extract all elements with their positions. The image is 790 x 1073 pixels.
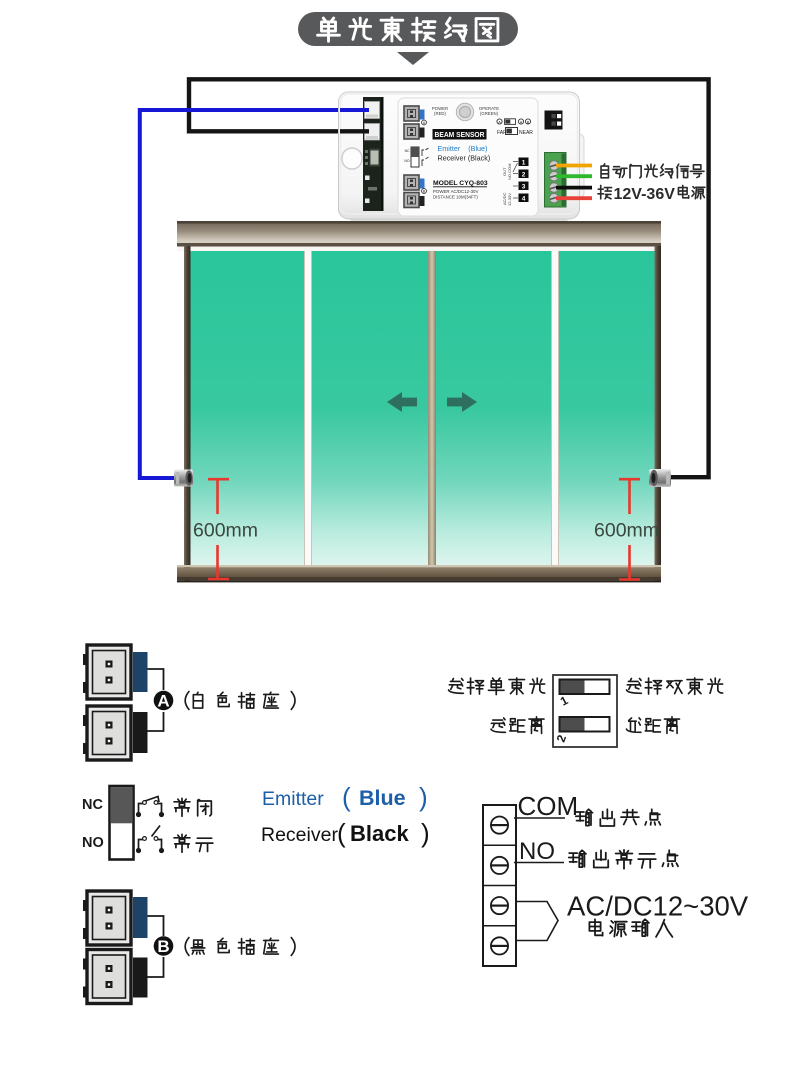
svg-text:DISTANCE 10M(34FT): DISTANCE 10M(34FT) [433, 195, 478, 200]
svg-text:BEAM SENSOR: BEAM SENSOR [435, 130, 485, 139]
svg-text:POWER AC/DC12-30V: POWER AC/DC12-30V [433, 189, 478, 194]
svg-text:NC: NC [405, 149, 410, 153]
svg-text:Emitter (Blue): Emitter (Blue) [438, 144, 488, 153]
svg-text:Receiver (Black): Receiver (Black) [438, 154, 491, 163]
svg-text:4: 4 [522, 195, 526, 202]
svg-text:(: ( [337, 818, 346, 848]
svg-text:(RED): (RED) [434, 111, 447, 116]
svg-text:COM: COM [518, 791, 579, 821]
svg-text:NC: NC [82, 797, 103, 813]
svg-text:1: 1 [522, 159, 526, 166]
svg-text:Receiver: Receiver [261, 824, 338, 846]
svg-text:A: A [157, 692, 169, 711]
svg-text:NO: NO [82, 835, 104, 851]
svg-text:12V-36V: 12V-36V [614, 186, 676, 203]
svg-text:): ) [421, 818, 430, 848]
svg-text:NO: NO [519, 838, 555, 865]
svg-text:Blue: Blue [359, 786, 406, 810]
svg-text:MODEL CYQ-803: MODEL CYQ-803 [433, 180, 488, 187]
svg-text:600mm: 600mm [193, 520, 258, 542]
svg-text:A: A [498, 120, 501, 124]
svg-text:NO: NO [404, 159, 409, 163]
svg-text:2: 2 [522, 171, 526, 178]
svg-text:(GREEN): (GREEN) [480, 111, 499, 116]
svg-text:A: A [520, 120, 523, 124]
svg-text:NEAR: NEAR [519, 130, 533, 136]
svg-text:600mm: 600mm [594, 520, 659, 542]
svg-text:B: B [527, 120, 530, 124]
svg-text:3: 3 [522, 183, 526, 190]
svg-text:NO.COM: NO.COM [507, 164, 512, 180]
svg-text:12-30V: 12-30V [507, 193, 512, 206]
svg-text:B: B [157, 937, 169, 956]
svg-text:Black: Black [350, 821, 409, 846]
svg-text:(: ( [342, 782, 351, 812]
svg-text:): ) [419, 782, 428, 812]
svg-text:AC/DC12~30V: AC/DC12~30V [567, 891, 749, 922]
svg-text:Emitter: Emitter [262, 788, 324, 810]
